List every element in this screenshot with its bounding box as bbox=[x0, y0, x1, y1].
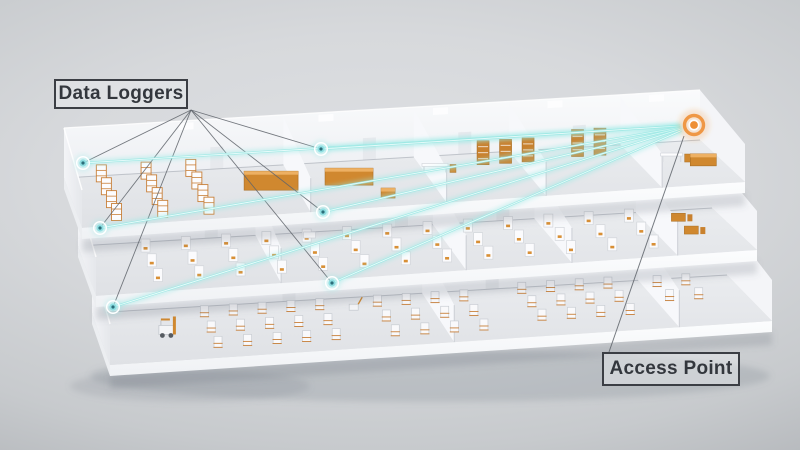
data-logger-node bbox=[314, 203, 333, 222]
data-loggers-label-text: Data Loggers bbox=[58, 83, 183, 105]
access-point-marker bbox=[678, 109, 710, 141]
table bbox=[671, 213, 685, 221]
wall-sign bbox=[649, 94, 664, 102]
data-logger-node bbox=[104, 298, 123, 317]
wall-sign bbox=[433, 107, 448, 115]
forklift bbox=[159, 325, 174, 334]
data-logger-node bbox=[74, 154, 93, 173]
access-point-label-text: Access Point bbox=[610, 358, 733, 380]
door bbox=[210, 147, 223, 170]
table bbox=[684, 226, 698, 234]
data-logger-node bbox=[323, 274, 342, 293]
pallet-jack bbox=[349, 304, 358, 310]
access-point-label: Access Point bbox=[602, 352, 740, 386]
data-loggers-label: Data Loggers bbox=[54, 79, 188, 109]
wall-sign bbox=[318, 114, 333, 122]
data-logger-node bbox=[91, 219, 110, 238]
data-logger-node bbox=[312, 140, 331, 159]
illustration-stage: Data Loggers Access Point bbox=[0, 0, 800, 450]
door bbox=[458, 132, 471, 155]
wall-sign bbox=[547, 100, 562, 108]
chair bbox=[700, 227, 705, 234]
chair bbox=[687, 214, 692, 221]
